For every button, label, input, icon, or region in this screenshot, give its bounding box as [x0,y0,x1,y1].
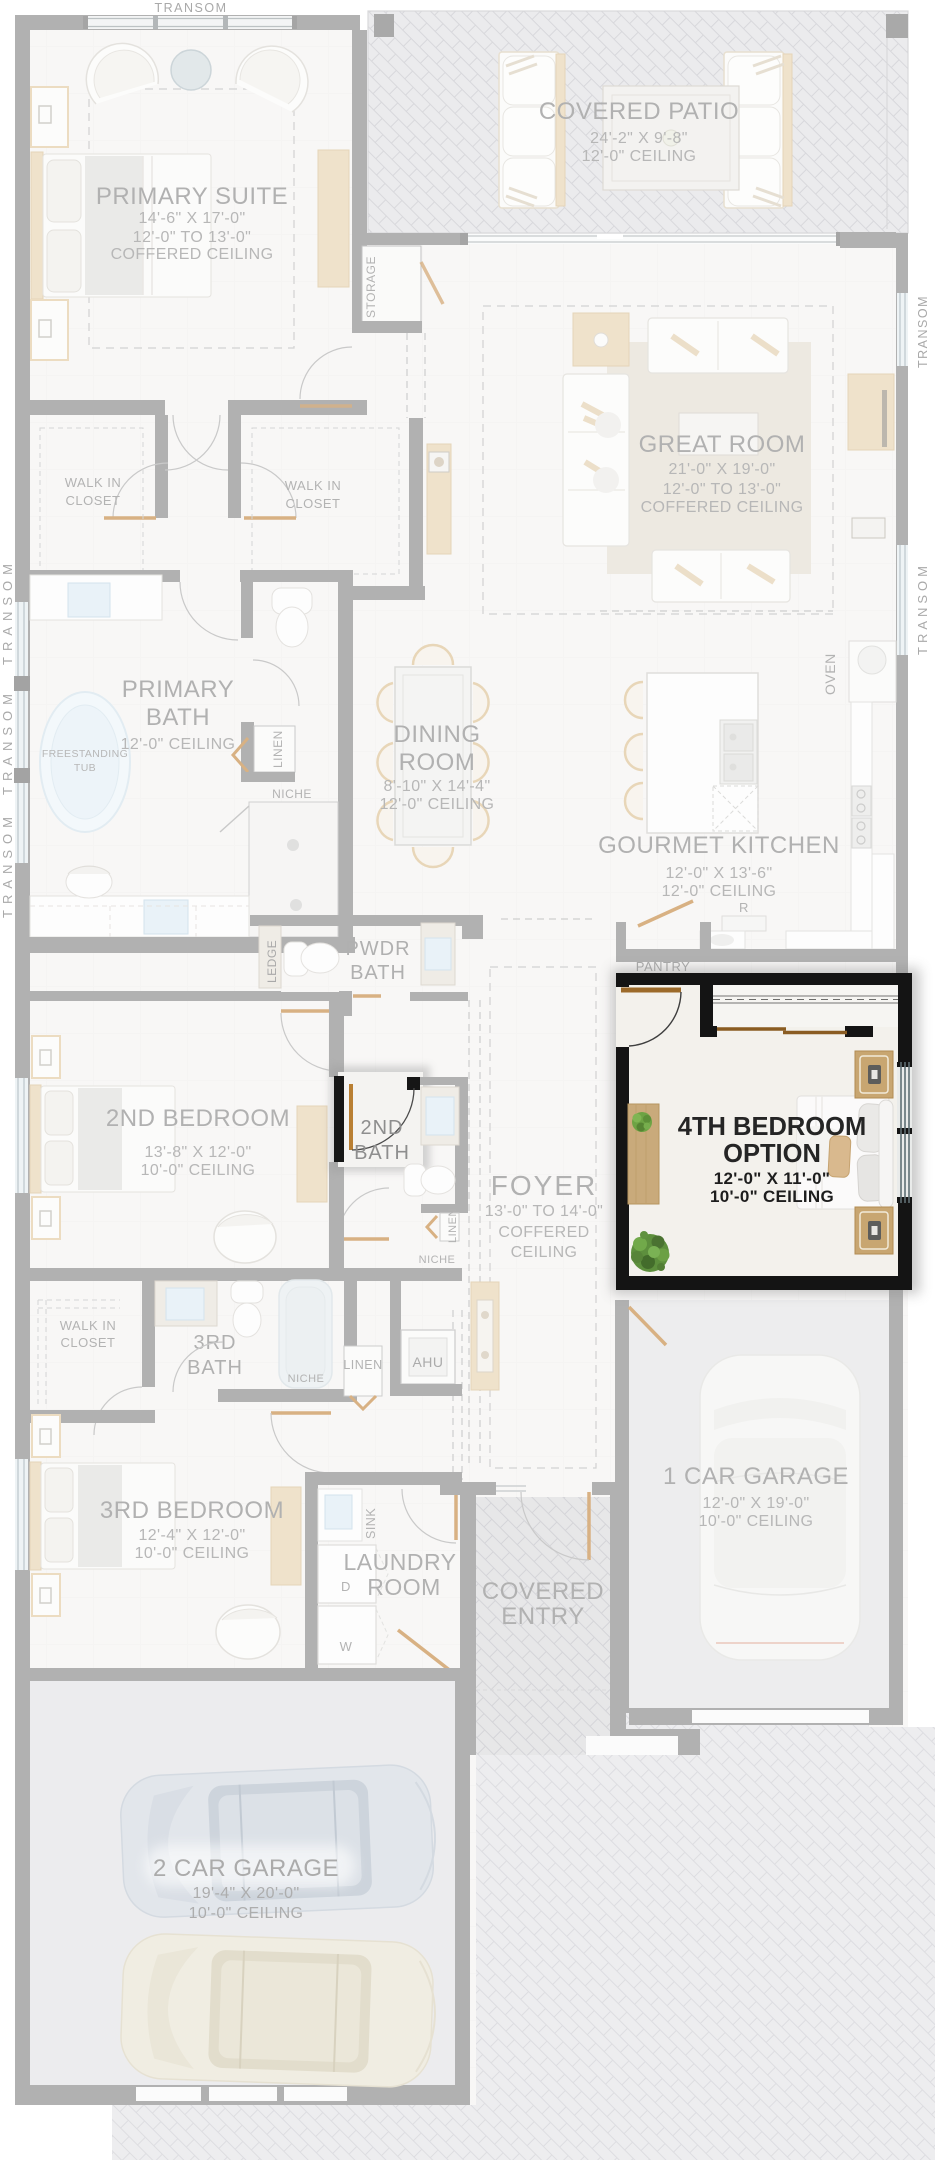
svg-text:PRIMARY SUITE: PRIMARY SUITE [96,183,288,210]
svg-text:13'-8" X 12'-0": 13'-8" X 12'-0" [144,1144,251,1161]
svg-text:PRIMARY: PRIMARY [122,676,234,703]
svg-text:12'-0" CEILING: 12'-0" CEILING [582,148,697,165]
svg-text:12'-0" X 11'-0": 12'-0" X 11'-0" [714,1169,831,1188]
svg-text:21'-0" X 19'-0": 21'-0" X 19'-0" [668,461,775,478]
svg-text:ROOM: ROOM [367,1574,441,1600]
svg-text:10'-0" CEILING: 10'-0" CEILING [141,1162,256,1179]
svg-text:WALK IN: WALK IN [65,475,121,490]
svg-text:COFFERED CEILING: COFFERED CEILING [111,246,274,263]
svg-text:WALK IN: WALK IN [285,478,341,493]
svg-text:12'-0" CEILING: 12'-0" CEILING [121,736,236,753]
svg-text:BATH: BATH [146,704,210,731]
svg-text:24'-2" X 9'-8": 24'-2" X 9'-8" [590,130,688,147]
svg-text:12'-0" TO 13'-0": 12'-0" TO 13'-0" [133,229,251,246]
svg-text:2ND BEDROOM: 2ND BEDROOM [106,1105,290,1132]
svg-text:TRANSOM: TRANSOM [916,295,930,368]
svg-text:10'-0" CEILING: 10'-0" CEILING [699,1513,814,1530]
svg-text:CEILING: CEILING [511,1244,578,1261]
svg-text:SINK: SINK [364,1508,378,1539]
svg-text:12'-0" CEILING: 12'-0" CEILING [662,883,777,900]
svg-text:ENTRY: ENTRY [501,1603,584,1630]
svg-text:LINEN: LINEN [271,730,285,768]
svg-text:CLOSET: CLOSET [65,493,120,508]
svg-text:GREAT ROOM: GREAT ROOM [639,431,806,458]
svg-text:NICHE: NICHE [419,1254,456,1266]
svg-text:LINEN: LINEN [447,1208,459,1243]
svg-text:BATH: BATH [350,962,406,984]
svg-text:10'-0" CEILING: 10'-0" CEILING [135,1545,250,1562]
svg-text:3RD BEDROOM: 3RD BEDROOM [100,1497,284,1524]
svg-text:12'-0" CEILING: 12'-0" CEILING [380,796,495,813]
svg-text:ROOM: ROOM [399,749,476,776]
svg-text:TRANSOM: TRANSOM [0,558,15,665]
svg-text:10'-0" CEILING: 10'-0" CEILING [189,1905,304,1922]
svg-text:BATH: BATH [354,1142,410,1164]
svg-text:COVERED PATIO: COVERED PATIO [539,98,739,125]
svg-text:LEDGE: LEDGE [265,940,279,983]
svg-text:GOURMET KITCHEN: GOURMET KITCHEN [598,832,840,859]
svg-text:12'-0" TO 13'-0": 12'-0" TO 13'-0" [663,481,781,498]
svg-text:LINEN: LINEN [343,1358,382,1372]
svg-text:BATH: BATH [187,1357,243,1379]
svg-text:WALK IN: WALK IN [60,1318,116,1333]
svg-text:CLOSET: CLOSET [285,496,340,511]
svg-text:DINING: DINING [394,721,481,748]
svg-text:TRANSOM: TRANSOM [915,562,930,655]
svg-text:TUB: TUB [74,762,96,774]
svg-text:PWDR: PWDR [345,938,410,960]
svg-text:NICHE: NICHE [288,1373,325,1385]
svg-text:CLOSET: CLOSET [60,1335,115,1350]
svg-text:W: W [340,1639,353,1654]
svg-text:COFFERED: COFFERED [498,1224,589,1241]
svg-text:12'-4" X 12'-0": 12'-4" X 12'-0" [138,1527,245,1544]
svg-text:14'-6" X 17'-0": 14'-6" X 17'-0" [138,210,245,227]
svg-text:10'-0" CEILING: 10'-0" CEILING [710,1187,834,1206]
svg-text:FOYER: FOYER [491,1170,597,1201]
svg-text:COVERED: COVERED [482,1578,604,1605]
svg-text:12'-0" X 19'-0": 12'-0" X 19'-0" [702,1495,809,1512]
svg-text:TRANSOM: TRANSOM [155,1,228,15]
svg-text:COFFERED CEILING: COFFERED CEILING [641,499,804,516]
svg-text:8'-10" X 14'-4": 8'-10" X 14'-4" [383,778,490,795]
svg-text:LAUNDRY: LAUNDRY [344,1549,457,1575]
svg-text:2ND: 2ND [360,1117,403,1139]
svg-text:AHU: AHU [412,1354,443,1370]
svg-text:19'-4" X 20'-0": 19'-4" X 20'-0" [192,1885,299,1902]
svg-text:13'-0" TO 14'-0": 13'-0" TO 14'-0" [485,1203,603,1220]
svg-text:D: D [341,1579,351,1594]
svg-text:TRANSOM: TRANSOM [0,811,15,918]
svg-text:TRANSOM: TRANSOM [0,688,15,795]
svg-text:OVEN: OVEN [822,653,838,695]
svg-text:R: R [739,900,749,915]
svg-text:FREESTANDING: FREESTANDING [42,748,128,760]
svg-text:4TH BEDROOM: 4TH BEDROOM [678,1113,866,1141]
svg-text:STORAGE: STORAGE [364,256,378,318]
svg-text:OPTION: OPTION [723,1140,821,1168]
svg-text:NICHE: NICHE [272,787,312,801]
svg-text:2 CAR GARAGE: 2 CAR GARAGE [153,1855,339,1882]
svg-text:12'-0" X 13'-6": 12'-0" X 13'-6" [665,865,772,882]
svg-text:1 CAR GARAGE: 1 CAR GARAGE [663,1463,849,1490]
